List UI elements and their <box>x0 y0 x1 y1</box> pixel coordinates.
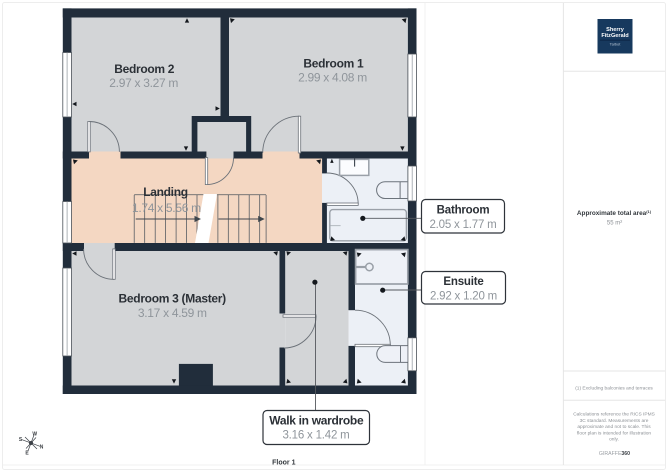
svg-text:Bathroom: Bathroom <box>437 205 490 217</box>
svg-text:W: W <box>32 431 37 437</box>
svg-text:2.97 x 3.27 m: 2.97 x 3.27 m <box>109 76 178 90</box>
svg-text:Walk in wardrobe: Walk in wardrobe <box>269 414 364 428</box>
svg-text:Approximate total area(1): Approximate total area(1) <box>577 209 652 217</box>
svg-text:1.74 x 5.56 m: 1.74 x 5.56 m <box>132 201 201 215</box>
svg-text:FitzGerald: FitzGerald <box>601 33 629 39</box>
svg-text:3.17 x 4.59 m: 3.17 x 4.59 m <box>138 306 207 320</box>
svg-text:approximate and not to scale.: approximate and not to scale. This <box>577 424 651 430</box>
svg-text:N: N <box>40 445 44 451</box>
svg-text:2.05 x 1.77 m: 2.05 x 1.77 m <box>429 219 496 231</box>
svg-text:2.99 x 4.08 m: 2.99 x 4.08 m <box>298 71 367 85</box>
svg-text:2.92 x 1.20 m: 2.92 x 1.20 m <box>430 291 497 303</box>
svg-text:3C standard. Measurements are: 3C standard. Measurements are <box>580 418 649 424</box>
svg-text:(1) Excluding balconies and te: (1) Excluding balconies and terraces <box>575 386 653 392</box>
svg-text:only.: only. <box>609 437 619 443</box>
svg-text:GIRAFFE360: GIRAFFE360 <box>599 451 630 457</box>
svg-text:Floor 1: Floor 1 <box>272 460 295 467</box>
svg-text:55 m²: 55 m² <box>607 221 622 227</box>
svg-text:Landing: Landing <box>143 185 188 199</box>
svg-text:floor plan is intended for ill: floor plan is intended for illustration <box>577 430 651 436</box>
svg-text:3.16 x 1.42 m: 3.16 x 1.42 m <box>282 430 349 442</box>
svg-text:Ensuite: Ensuite <box>443 276 483 288</box>
svg-text:Calculations reference the RIC: Calculations reference the RICS IPMS <box>573 412 655 418</box>
svg-text:Bedroom 2: Bedroom 2 <box>114 62 175 76</box>
svg-text:Bedroom 1: Bedroom 1 <box>303 57 364 71</box>
svg-text:Talbot: Talbot <box>610 41 622 46</box>
svg-text:Bedroom 3 (Master): Bedroom 3 (Master) <box>119 292 227 306</box>
